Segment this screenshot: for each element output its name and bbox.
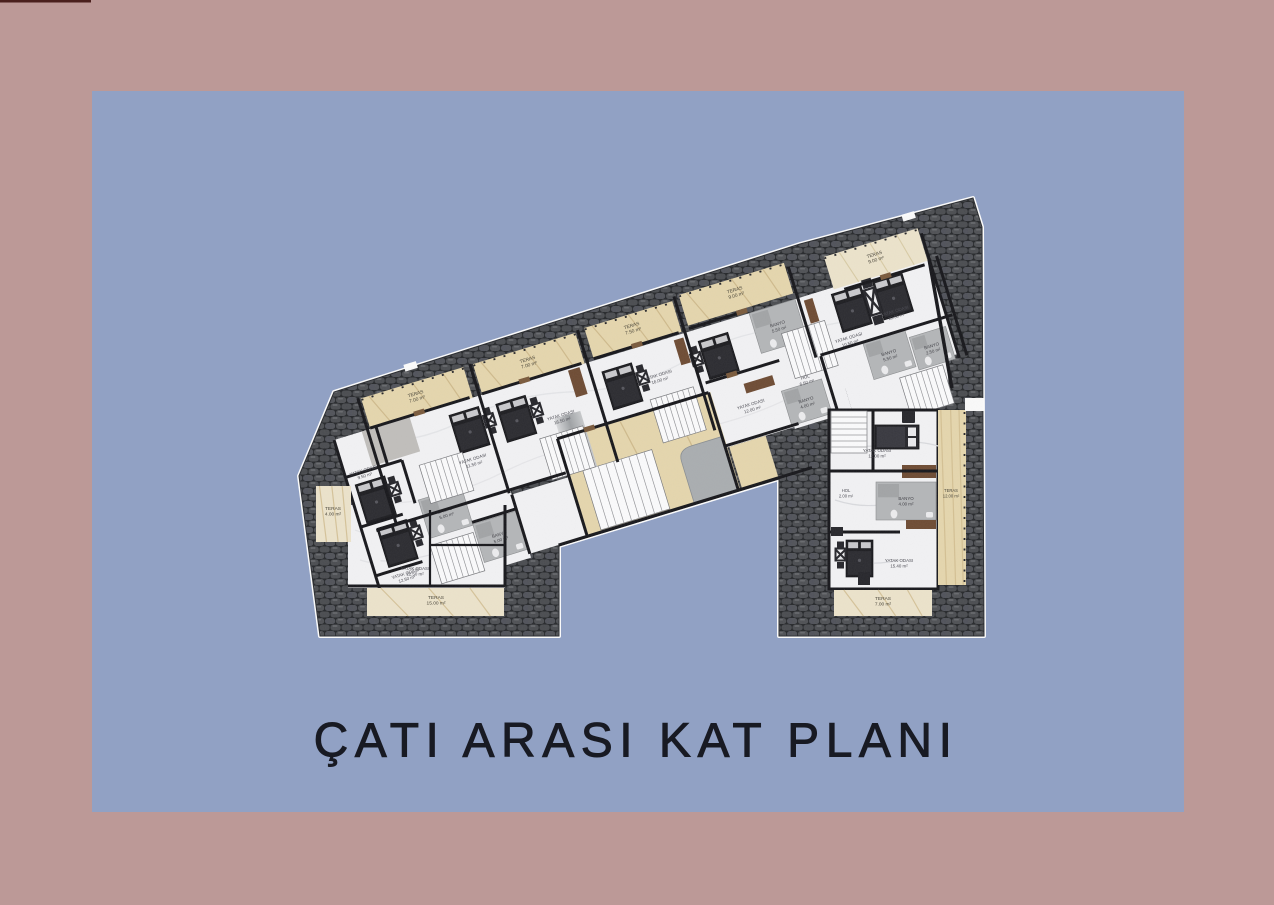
svg-text:ÇATI ARASI KAT PLANI: ÇATI ARASI KAT PLANI: [314, 715, 959, 768]
